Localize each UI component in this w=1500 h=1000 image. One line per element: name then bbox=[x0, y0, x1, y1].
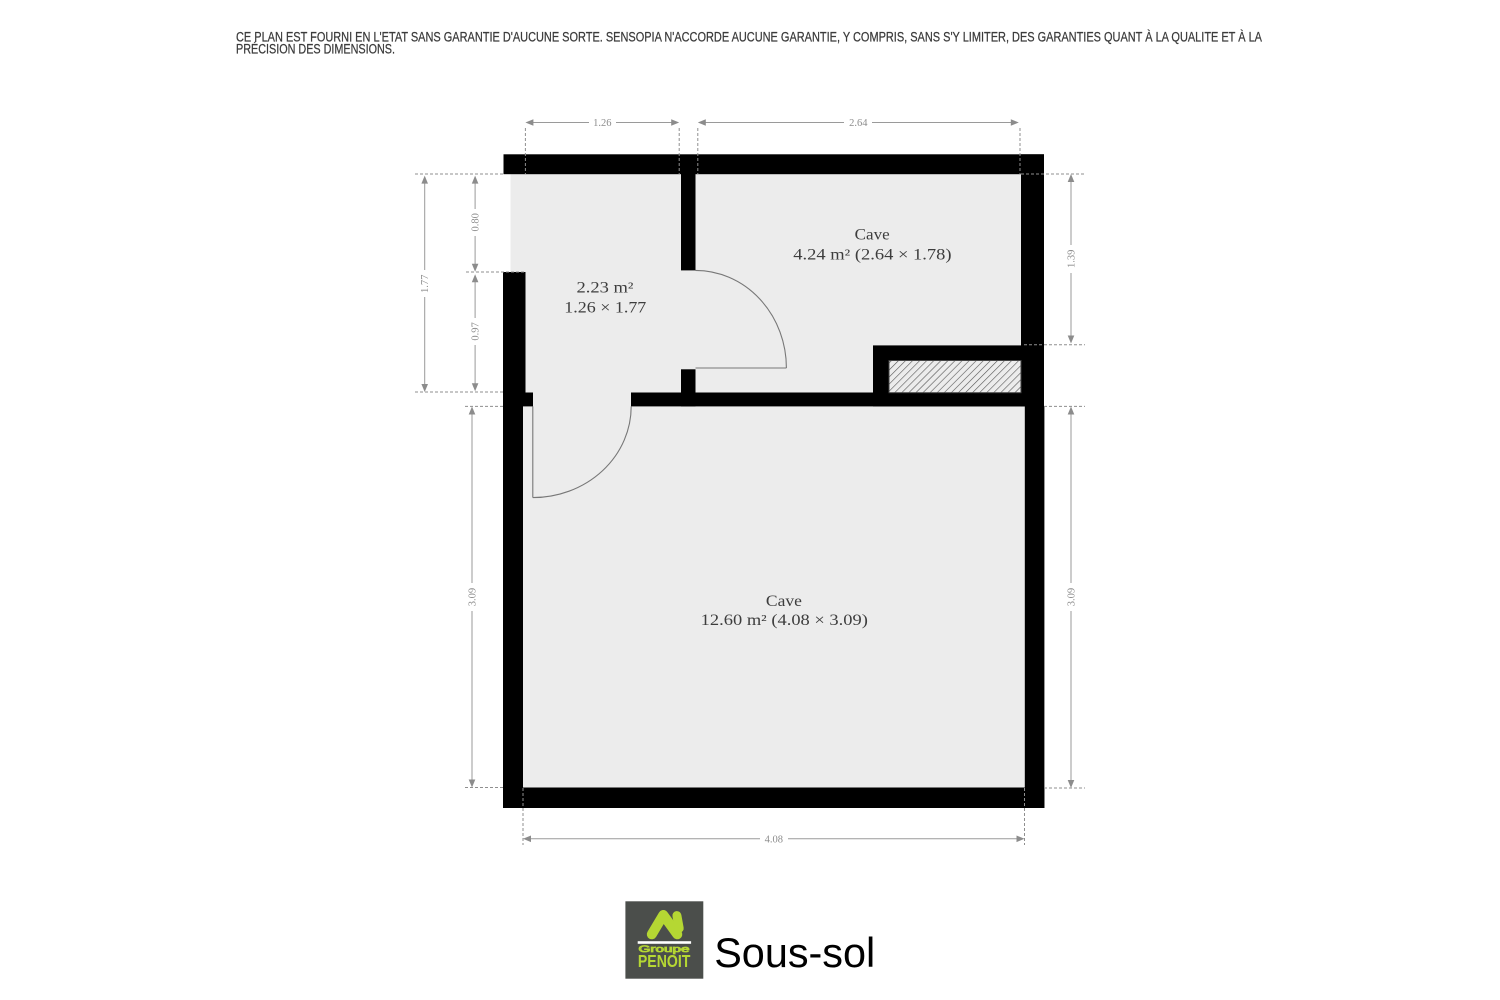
svg-text:PRÉCISION DES DIMENSIONS.: PRÉCISION DES DIMENSIONS. bbox=[236, 41, 395, 56]
svg-text:0.97: 0.97 bbox=[471, 322, 482, 340]
svg-text:4.08: 4.08 bbox=[765, 834, 783, 845]
svg-text:3.09: 3.09 bbox=[468, 588, 479, 606]
svg-text:3.09: 3.09 bbox=[1067, 588, 1078, 606]
svg-text:Cave: Cave bbox=[766, 593, 802, 610]
svg-text:0.80: 0.80 bbox=[471, 213, 482, 231]
svg-text:1.77: 1.77 bbox=[420, 275, 431, 293]
svg-text:2.64: 2.64 bbox=[849, 118, 868, 129]
svg-text:4.24 m² (2.64 × 1.78): 4.24 m² (2.64 × 1.78) bbox=[793, 246, 951, 263]
svg-text:1.26: 1.26 bbox=[593, 118, 611, 129]
svg-text:Cave: Cave bbox=[855, 227, 890, 244]
svg-text:Sous-sol: Sous-sol bbox=[714, 930, 875, 976]
svg-text:1.39: 1.39 bbox=[1067, 250, 1078, 268]
svg-text:PENOIT: PENOIT bbox=[638, 951, 691, 971]
svg-text:2.23 m²: 2.23 m² bbox=[577, 280, 634, 297]
svg-text:1.26 × 1.77: 1.26 × 1.77 bbox=[564, 299, 646, 316]
svg-text:12.60 m² (4.08 × 3.09): 12.60 m² (4.08 × 3.09) bbox=[701, 612, 868, 629]
